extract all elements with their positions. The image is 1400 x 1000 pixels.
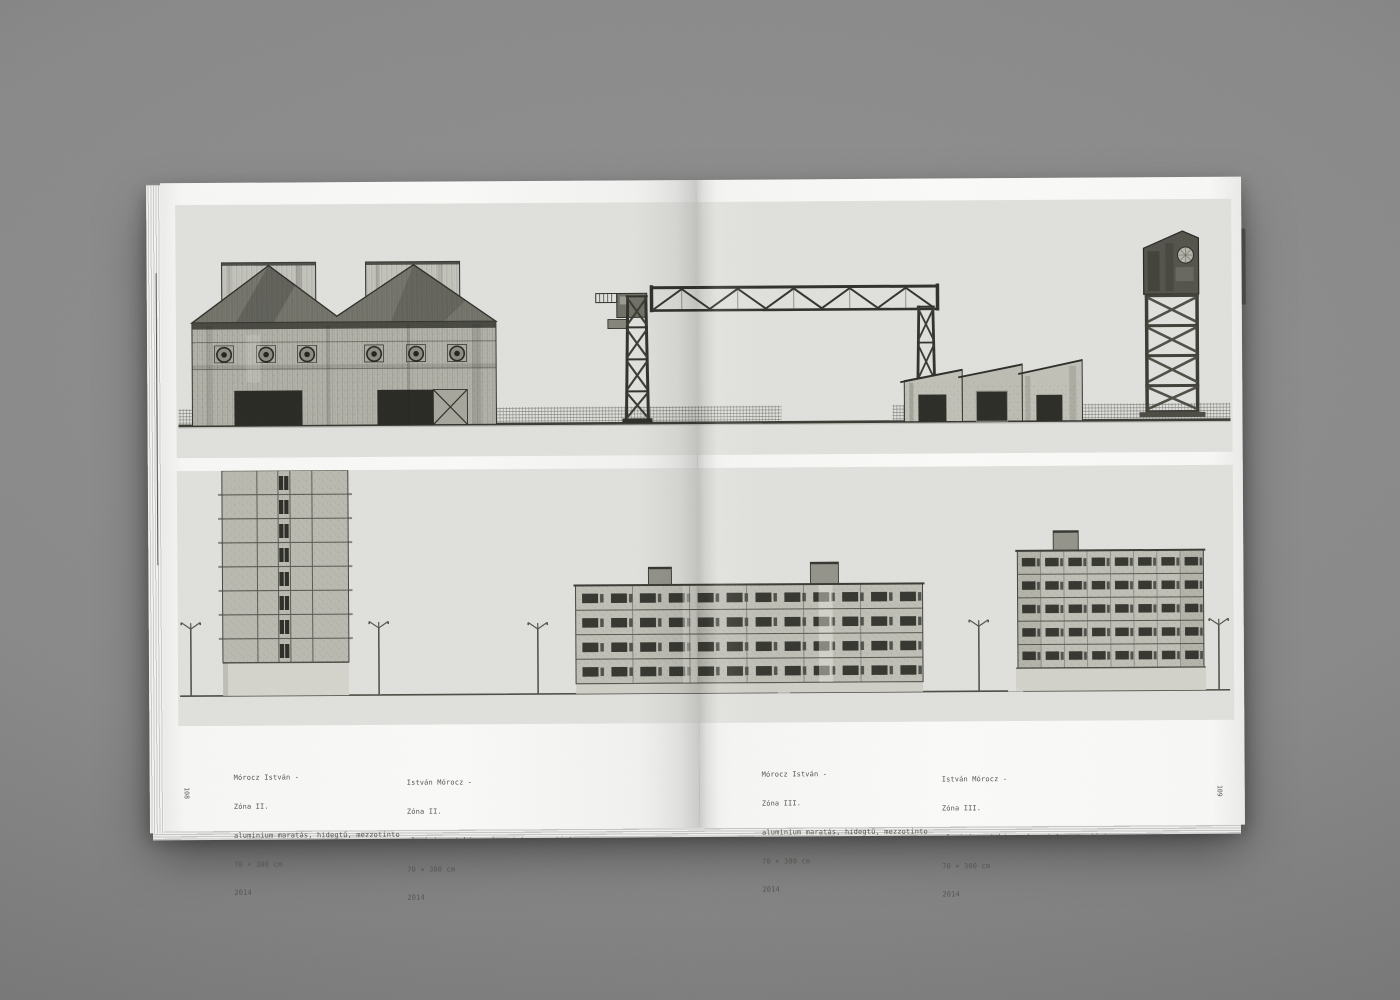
plate-industrial-zone bbox=[175, 199, 1233, 458]
caption-technique: aluminium maratás, hidegtű, mezzotinto bbox=[234, 831, 400, 842]
roof-box bbox=[1053, 531, 1078, 551]
plate-housing-blocks bbox=[177, 465, 1235, 726]
slab-plinth bbox=[1016, 667, 1206, 691]
street-lamp bbox=[181, 623, 200, 697]
workshop-row bbox=[900, 360, 1082, 422]
caption-artist: Mórocz István - bbox=[762, 770, 928, 781]
caption-right-hu: Mórocz István - Zóna III. aluminium mara… bbox=[762, 751, 929, 915]
caption-year: 2014 bbox=[762, 885, 928, 896]
industrial-zone-etching bbox=[175, 199, 1233, 458]
caption-right-en: István Mórocz - Zóna III. aluminium etch… bbox=[942, 755, 1118, 919]
caption-left-en: István Mórocz - Zóna II. aluminium etchi… bbox=[407, 759, 583, 923]
factory-hall bbox=[192, 261, 497, 426]
caption-title: Zóna III. bbox=[942, 803, 1117, 814]
caption-technique: aluminium maratás, hidegtű, mezzotinto bbox=[762, 827, 928, 838]
caption-technique: aluminium etching, drypoint, mezzotinto, bbox=[407, 835, 582, 846]
caption-artist: István Mórocz - bbox=[942, 775, 1117, 786]
page-number-right: 109 bbox=[1216, 785, 1224, 797]
caption-title: Zóna II. bbox=[234, 802, 400, 813]
apartment-slab-center bbox=[573, 562, 925, 694]
housing-estate-etching bbox=[177, 465, 1235, 726]
caption-dimensions: 70 × 300 cm bbox=[407, 864, 582, 875]
crane-cab bbox=[596, 293, 647, 328]
street-lamp bbox=[528, 622, 547, 694]
tower-lattice bbox=[1145, 294, 1200, 416]
caption-year: 2014 bbox=[407, 893, 582, 904]
factory-door bbox=[234, 390, 302, 425]
caption-year: 2014 bbox=[234, 888, 400, 899]
caption-year: 2014 bbox=[942, 890, 1117, 901]
crane-bridge bbox=[650, 284, 940, 313]
tower-plinth bbox=[223, 662, 349, 696]
roof-box bbox=[648, 567, 671, 585]
caption-dimensions: 70 × 300 cm bbox=[762, 856, 928, 867]
street-lamp bbox=[969, 620, 988, 692]
caption-dimensions: 70 × 300 cm bbox=[942, 861, 1117, 872]
caption-artist: Mórocz István - bbox=[234, 773, 400, 784]
caption-title: Zóna III. bbox=[762, 799, 928, 810]
tower-block bbox=[218, 470, 353, 696]
gantry-crane bbox=[596, 284, 940, 424]
caption-title: Zóna II. bbox=[407, 807, 582, 818]
street-lamp bbox=[1209, 618, 1228, 690]
roof-box bbox=[810, 562, 838, 584]
water-tower bbox=[1138, 231, 1205, 417]
caption-artist: István Mórocz - bbox=[407, 778, 582, 789]
caption-left-hu: Mórocz István - Zóna II. aluminium marat… bbox=[234, 754, 401, 918]
page-number-left: 108 bbox=[183, 787, 191, 799]
caption-dimensions: 70 × 300 cm bbox=[234, 859, 400, 870]
braced-gate bbox=[433, 389, 467, 424]
street-lamp bbox=[369, 621, 388, 695]
open-book: Mórocz István - Zóna II. aluminium marat… bbox=[146, 177, 1245, 832]
factory-door bbox=[377, 390, 433, 425]
caption-technique: aluminium etching, drypoint, mezzotinto, bbox=[942, 832, 1117, 843]
photo-backdrop: Mórocz István - Zóna II. aluminium marat… bbox=[0, 0, 1400, 1000]
apartment-slab-right bbox=[1015, 530, 1206, 691]
